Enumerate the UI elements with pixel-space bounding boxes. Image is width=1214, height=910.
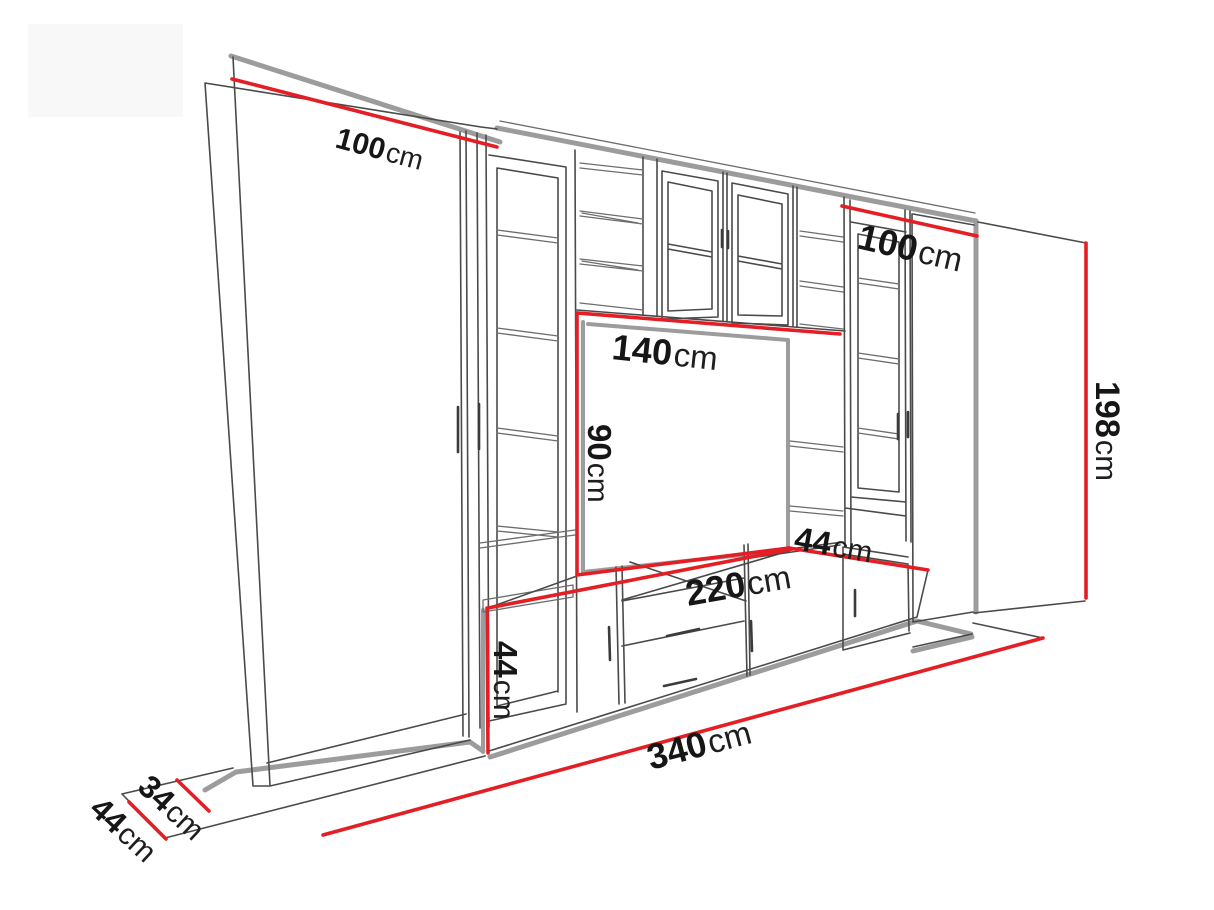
label-total-width: 340cm bbox=[642, 711, 755, 778]
right-glass-cabinet-shelves bbox=[858, 278, 899, 439]
label-tv-stand-height: 44cm bbox=[487, 641, 524, 720]
top-bridge-cabinets bbox=[577, 157, 845, 331]
label-tv-niche-height: 90cm bbox=[581, 424, 618, 503]
background-artifact bbox=[28, 24, 183, 117]
wall-unit-drawing: 100cm 100cm 140cm 90cm 44cm 220cm 44cm 3… bbox=[0, 0, 1214, 910]
niche-side-shelves bbox=[790, 441, 843, 516]
left-glass-cabinet-shelves bbox=[480, 230, 575, 612]
unit-top-edge bbox=[497, 128, 976, 221]
label-left-wardrobe-width: 100cm bbox=[332, 122, 427, 177]
right-wardrobe bbox=[912, 214, 974, 647]
furniture-dimension-diagram: 100cm 100cm 140cm 90cm 44cm 220cm 44cm 3… bbox=[0, 0, 1214, 910]
left-wardrobe bbox=[205, 57, 497, 786]
label-shelf-depth: 44cm bbox=[792, 519, 876, 569]
right-side-panel bbox=[973, 222, 1086, 638]
left-glass-cabinet bbox=[477, 133, 577, 728]
label-tv-stand-width: 220cm bbox=[682, 555, 794, 614]
label-total-height: 198cm bbox=[1088, 381, 1126, 481]
door-handles bbox=[458, 230, 908, 686]
shadow-edges bbox=[205, 56, 976, 790]
